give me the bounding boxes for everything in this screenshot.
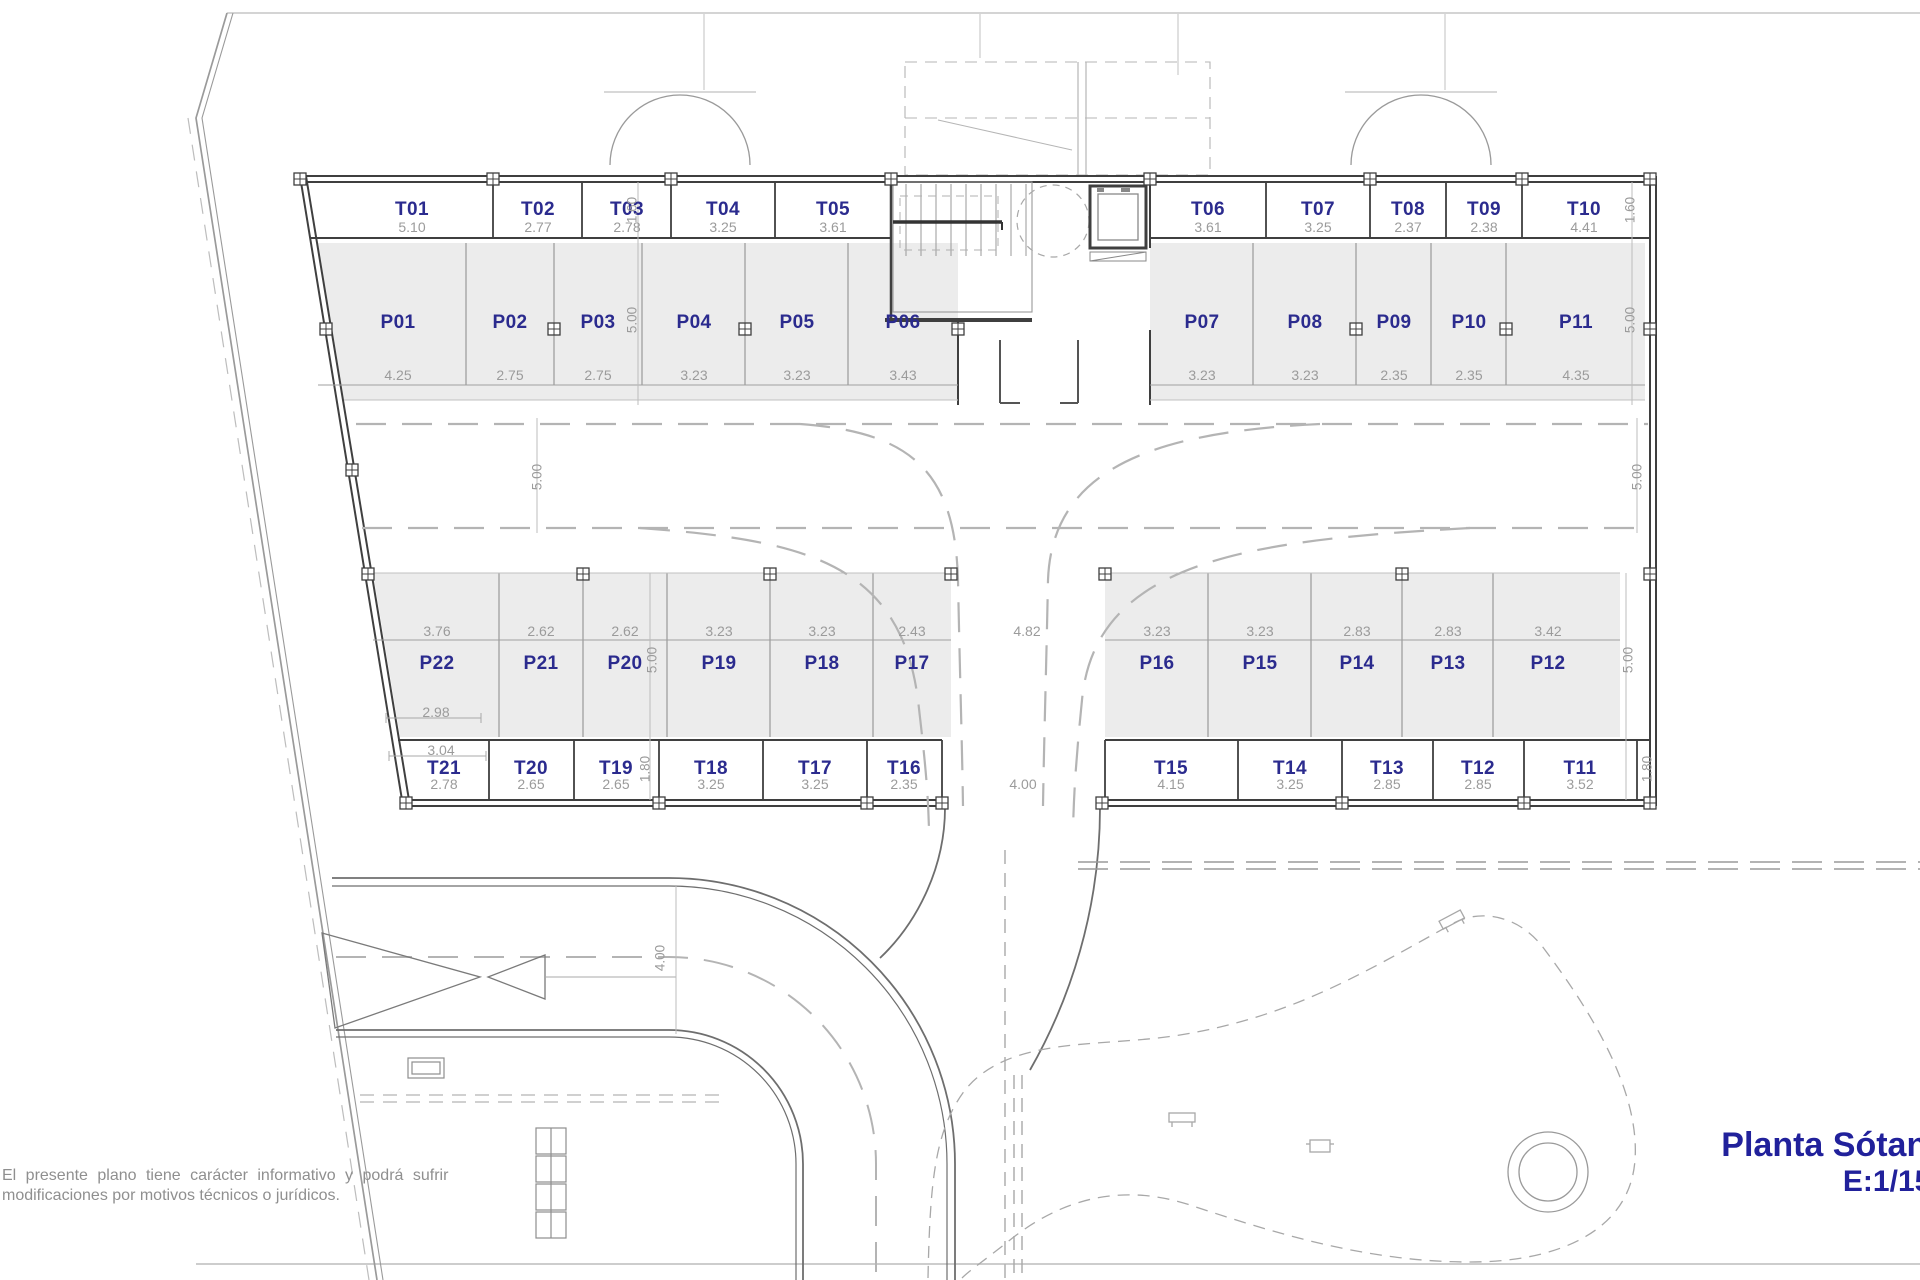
side-dim: 1.60 bbox=[1623, 197, 1638, 223]
bench-icon bbox=[1439, 910, 1467, 934]
storage-dim: 3.61 bbox=[819, 219, 846, 235]
parking-stall-label: P02 bbox=[492, 312, 527, 334]
parking-stall-dim: 3.23 bbox=[808, 623, 835, 639]
storage-dim: 3.25 bbox=[697, 776, 724, 792]
parking-stall-label: P01 bbox=[380, 312, 415, 334]
parking-stall-dim: 3.42 bbox=[1534, 623, 1561, 639]
drive-aisle-markings bbox=[356, 424, 1648, 1280]
center-aisle-dim: 4.82 bbox=[1013, 623, 1040, 639]
parking-stall-label: P17 bbox=[894, 653, 929, 675]
parking-stall-label: P19 bbox=[701, 653, 736, 675]
storage-label: T02 bbox=[521, 199, 555, 221]
parking-stall-dim: 4.25 bbox=[384, 367, 411, 383]
parking-stall-dim: 2.83 bbox=[1434, 623, 1461, 639]
plan-scale: E:1/150 bbox=[1540, 1165, 1920, 1200]
storage-dim: 2.37 bbox=[1394, 219, 1421, 235]
parking-stall-dim: 3.23 bbox=[1143, 623, 1170, 639]
parking-stall-label: P03 bbox=[580, 312, 615, 334]
storage-dim: 2.77 bbox=[524, 219, 551, 235]
side-dim: 5.00 bbox=[530, 464, 545, 490]
ramp-arrow-icon bbox=[322, 886, 676, 1034]
parking-stall-label: P05 bbox=[779, 312, 814, 334]
side-dim: 5.00 bbox=[1630, 464, 1645, 490]
storage-dim: 2.65 bbox=[602, 776, 629, 792]
disclaimer-note: El presente plano tiene carácter informa… bbox=[2, 1166, 448, 1205]
storage-dim: 2.78 bbox=[430, 776, 457, 792]
turning-circle bbox=[1017, 185, 1089, 257]
parking-stall-label: P04 bbox=[676, 312, 711, 334]
parking-stall-label: P14 bbox=[1339, 653, 1374, 675]
storage-dim: 2.35 bbox=[890, 776, 917, 792]
storage-label: T05 bbox=[816, 199, 850, 221]
parking-stall-dim: 3.23 bbox=[1246, 623, 1273, 639]
utility-icons bbox=[408, 1058, 566, 1238]
parking-stall-label: P13 bbox=[1430, 653, 1465, 675]
floor-plan-sheet: T01 5.10 T02 2.77 T03 2.78 T04 3.25 T05 … bbox=[0, 0, 1920, 1280]
table-icon bbox=[1306, 1140, 1334, 1152]
storage-label: T01 bbox=[395, 199, 429, 221]
storage-dim: 3.25 bbox=[1276, 776, 1303, 792]
storage-dim: 2.38 bbox=[1470, 219, 1497, 235]
storage-dim: 2.85 bbox=[1373, 776, 1400, 792]
upper-floor-projection bbox=[704, 14, 1445, 175]
parking-stall-dim: 3.23 bbox=[680, 367, 707, 383]
storage-label: T07 bbox=[1301, 199, 1335, 221]
plan-title: Planta Sótano bbox=[1540, 1126, 1920, 1165]
title-block: Planta Sótano E:1/150 bbox=[1540, 1126, 1920, 1200]
entrance-door-swing-icon bbox=[604, 92, 756, 165]
parking-stall-label: P06 bbox=[885, 312, 920, 334]
storage-dim: 3.52 bbox=[1566, 776, 1593, 792]
parking-stall-dim: 2.62 bbox=[611, 623, 638, 639]
parking-stall-label: P08 bbox=[1287, 312, 1322, 334]
parking-stall-label: P12 bbox=[1530, 653, 1565, 675]
ramp-width-dim: 4.00 bbox=[653, 945, 668, 971]
side-dim: 5.00 bbox=[1623, 307, 1638, 333]
side-dim: 1.80 bbox=[638, 756, 653, 782]
parking-stall-label: P15 bbox=[1242, 653, 1277, 675]
side-dim: 5.00 bbox=[645, 647, 660, 673]
storage-dim: 3.25 bbox=[709, 219, 736, 235]
parking-stall-dim: 2.83 bbox=[1343, 623, 1370, 639]
parking-stall-dim: 3.23 bbox=[705, 623, 732, 639]
storage-dim: 4.15 bbox=[1157, 776, 1184, 792]
parking-stall-dim: 3.23 bbox=[1188, 367, 1215, 383]
parking-stall-dim: 2.62 bbox=[527, 623, 554, 639]
parking-stall-dim: 2.35 bbox=[1380, 367, 1407, 383]
parking-stall-dim: 2.75 bbox=[584, 367, 611, 383]
side-dim: 1.80 bbox=[1640, 756, 1655, 782]
storage-label: T08 bbox=[1391, 199, 1425, 221]
storage-label: T09 bbox=[1467, 199, 1501, 221]
parking-stall-label: P09 bbox=[1376, 312, 1411, 334]
storage-dim: 2.65 bbox=[517, 776, 544, 792]
side-dim: 5.00 bbox=[625, 307, 640, 333]
parking-stall-label: P20 bbox=[607, 653, 642, 675]
side-dim: 1.60 bbox=[625, 197, 640, 223]
parking-stall-label: P21 bbox=[523, 653, 558, 675]
parking-stall-label: P07 bbox=[1184, 312, 1219, 334]
sub-dim: 3.04 bbox=[427, 742, 454, 758]
storage-label: T06 bbox=[1191, 199, 1225, 221]
parking-stall-label: P16 bbox=[1139, 653, 1174, 675]
parking-stall-dim: 2.35 bbox=[1455, 367, 1482, 383]
bench-icon bbox=[1169, 1113, 1195, 1127]
parking-stall-dim: 3.43 bbox=[889, 367, 916, 383]
parking-stall-dim: 4.35 bbox=[1562, 367, 1589, 383]
storage-dim: 5.10 bbox=[398, 219, 425, 235]
floor-plan-drawing bbox=[0, 0, 1920, 1280]
access-road bbox=[332, 808, 1920, 1280]
storage-dim: 3.61 bbox=[1194, 219, 1221, 235]
parking-stall-dim: 2.75 bbox=[496, 367, 523, 383]
parking-stall-label: P11 bbox=[1559, 312, 1593, 334]
sub-dim: 2.98 bbox=[422, 704, 449, 720]
storage-dim: 3.25 bbox=[1304, 219, 1331, 235]
storage-dim: 2.85 bbox=[1464, 776, 1491, 792]
center-aisle-dim: 4.00 bbox=[1009, 776, 1036, 792]
disclaimer-line2: modificaciones por motivos técnicos o ju… bbox=[2, 1186, 448, 1206]
entrance-door-swing-icon bbox=[1345, 92, 1497, 165]
storage-label: T04 bbox=[706, 199, 740, 221]
garden-area bbox=[928, 910, 1635, 1278]
side-dim: 5.00 bbox=[1621, 647, 1636, 673]
parking-stall-label: P10 bbox=[1451, 312, 1486, 334]
parking-stall-dim: 3.23 bbox=[783, 367, 810, 383]
storage-label: T10 bbox=[1567, 199, 1601, 221]
parking-stall-label: P22 bbox=[419, 653, 454, 675]
parking-stall-dim: 2.43 bbox=[898, 623, 925, 639]
parking-stall-label: P18 bbox=[804, 653, 839, 675]
disclaimer-line1: El presente plano tiene carácter informa… bbox=[2, 1166, 448, 1186]
parking-stall-dim: 3.23 bbox=[1291, 367, 1318, 383]
elevator-icon bbox=[1090, 186, 1146, 261]
parking-stall-dim: 3.76 bbox=[423, 623, 450, 639]
storage-dim: 4.41 bbox=[1570, 219, 1597, 235]
storage-dim: 3.25 bbox=[801, 776, 828, 792]
